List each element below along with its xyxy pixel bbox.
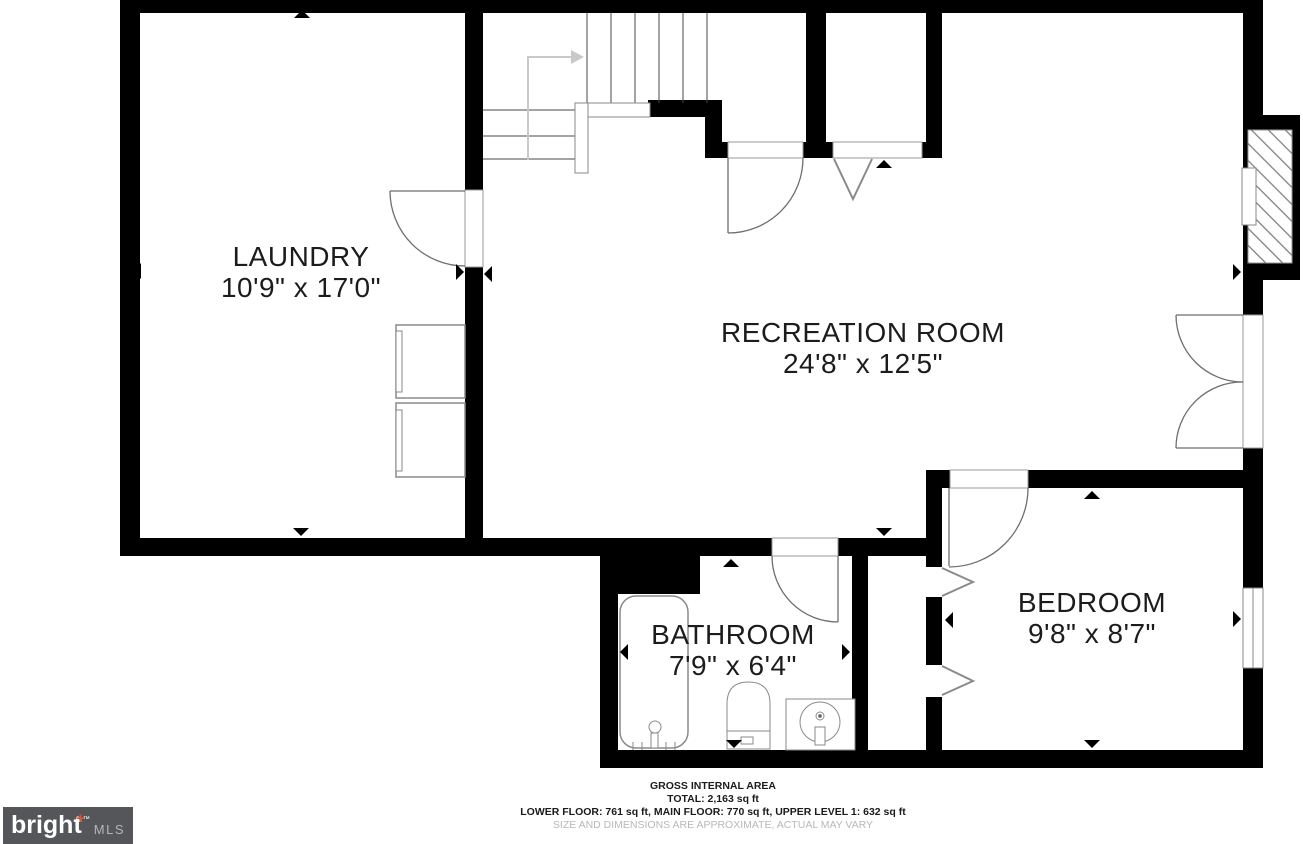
room-dimensions: 10'9" x 17'0" [151,272,451,303]
area-summary-title: GROSS INTERNAL AREA [462,780,964,793]
area-summary-total: TOTAL: 2,163 sq ft [462,793,964,806]
room-dimensions: 24'8" x 12'5" [663,348,1063,379]
floor-plan-page: LAUNDRY 10'9" x 17'0" RECREATION ROOM 24… [0,0,1303,844]
area-summary-disclaimer: SIZE AND DIMENSIONS ARE APPROXIMATE, ACT… [462,819,964,832]
dryer [396,403,465,477]
area-summary-breakdown: LOWER FLOOR: 761 sq ft, MAIN FLOOR: 770 … [462,806,964,819]
room-name: LAUNDRY [151,241,451,272]
bedroom-closet-bifold-bottom [942,666,973,695]
closet-door [728,158,803,233]
bedroom-window [1243,588,1263,668]
room-label-bathroom: BATHROOM 7'9" x 6'4" [603,619,863,681]
logo-plus-accent: + [76,811,85,826]
washer [396,325,465,398]
logo-brand-text: bright+ [11,813,82,838]
room-name: BEDROOM [952,587,1232,618]
room-label-laundry: LAUNDRY 10'9" x 17'0" [151,241,451,303]
firebox [1242,168,1256,225]
logo-mls-text: MLS [94,823,125,836]
room-name: RECREATION ROOM [663,317,1063,348]
bedroom-door [949,488,1028,567]
toilet [727,682,770,749]
room-dimensions: 9'8" x 8'7" [952,618,1232,649]
bright-mls-logo: bright+ ™ MLS [3,807,133,844]
closet-bifold-door [834,159,872,199]
fireplace [1242,115,1300,280]
sink [786,699,855,750]
room-label-recreation-room: RECREATION ROOM 24'8" x 12'5" [663,317,1063,379]
room-name: BATHROOM [603,619,863,650]
staircase [483,13,707,173]
room-label-bedroom: BEDROOM 9'8" x 8'7" [952,587,1232,649]
bathroom-door [772,556,838,622]
room-dimensions: 7'9" x 6'4" [603,650,863,681]
floor-plan-drawing [0,0,1303,844]
double-door [1176,315,1243,448]
area-summary: GROSS INTERNAL AREA TOTAL: 2,163 sq ft L… [462,780,964,832]
